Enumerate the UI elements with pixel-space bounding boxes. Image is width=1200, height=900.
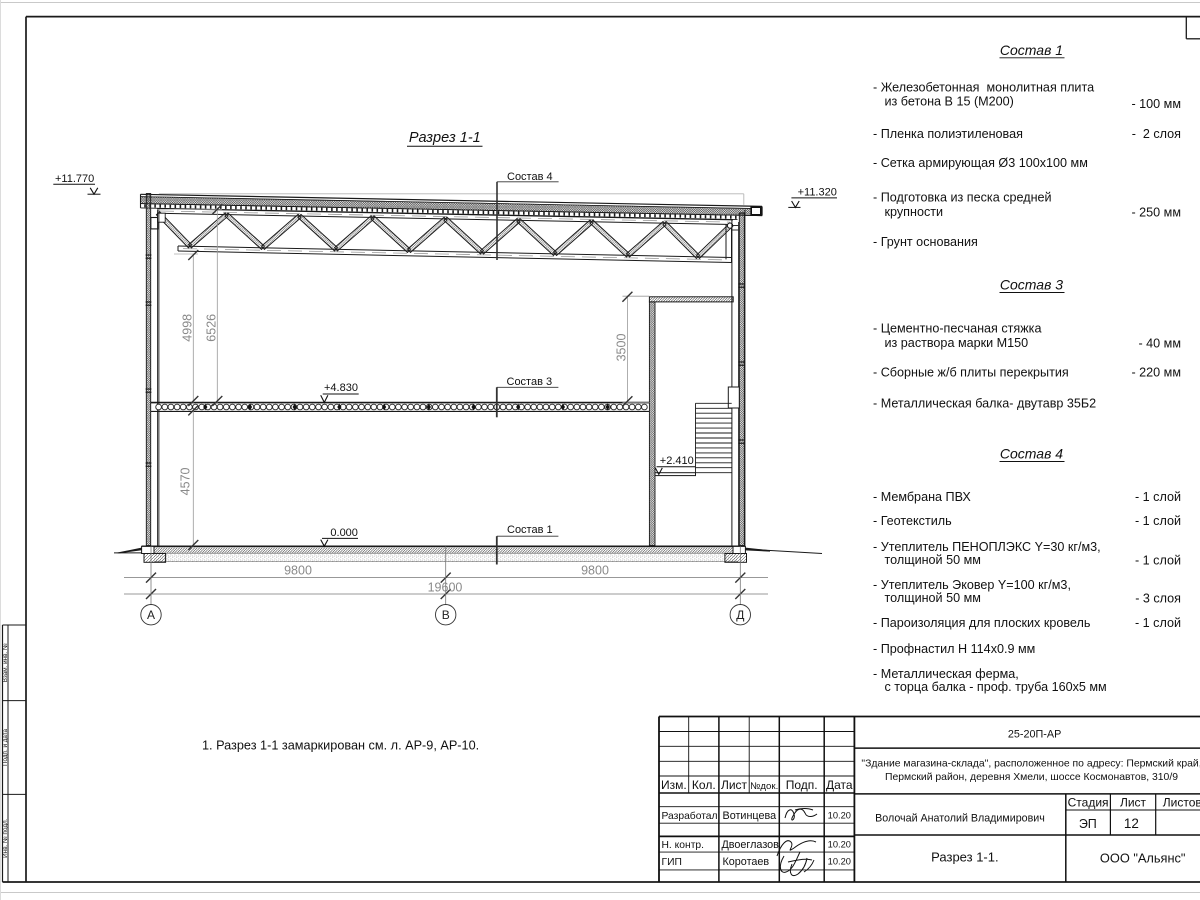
svg-text:- 40 мм: - 40 мм <box>1138 337 1181 351</box>
svg-text:Изм.: Изм. <box>661 778 687 792</box>
svg-text:0.000: 0.000 <box>330 527 358 539</box>
svg-text:- Сборные ж/б плиты перекрытия: - Сборные ж/б плиты перекрытия <box>873 366 1069 380</box>
svg-text:- 100 мм: - 100 мм <box>1131 97 1181 111</box>
svg-text:+2.410: +2.410 <box>660 455 694 467</box>
svg-text:толщиной 50 мм: толщиной 50 мм <box>885 553 981 567</box>
svg-text:Волочай Анатолий Владимирович: Волочай Анатолий Владимирович <box>875 812 1045 824</box>
svg-text:Пермский район, деревня Хмели,: Пермский район, деревня Хмели, шоссе Кос… <box>885 772 1178 783</box>
svg-text:крупности: крупности <box>885 205 944 219</box>
svg-text:Разрез 1-1.: Разрез 1-1. <box>931 850 998 865</box>
svg-text:- Металлическая ферма,: - Металлическая ферма, <box>873 667 1019 681</box>
svg-text:Лист: Лист <box>721 778 748 792</box>
svg-text:- Пленка полиэтиленовая: - Пленка полиэтиленовая <box>873 127 1023 141</box>
svg-text:19600: 19600 <box>428 580 463 594</box>
svg-text:- Мембрана ПВХ: - Мембрана ПВХ <box>873 490 971 504</box>
svg-text:- Грунт основания: - Грунт основания <box>873 235 978 249</box>
svg-text:Вотинцева: Вотинцева <box>723 810 777 822</box>
svg-text:+11.320: +11.320 <box>798 187 837 199</box>
svg-text:10.20: 10.20 <box>828 811 851 821</box>
svg-text:- Цементно-песчаная стяжка: - Цементно-песчаная стяжка <box>873 321 1041 335</box>
svg-text:Состав 3: Состав 3 <box>1000 276 1063 292</box>
svg-text:- Подготовка из песка средней: - Подготовка из песка средней <box>873 191 1052 205</box>
svg-text:- Пароизоляция для плоских кро: - Пароизоляция для плоских кровель <box>873 616 1091 630</box>
svg-text:Разработал: Разработал <box>662 810 718 822</box>
svg-text:- Железобетонная монолитная п: - Железобетонная монолитная плита <box>873 81 1094 95</box>
svg-text:Двоеглазов: Двоеглазов <box>722 839 780 851</box>
svg-text:- 2 слоя: - 2 слоя <box>1132 127 1181 141</box>
svg-text:Разрез 1-1: Разрез 1-1 <box>409 130 481 146</box>
svg-text:ЭП: ЭП <box>1079 817 1097 831</box>
svg-text:- Металлическая балка- двутавр: - Металлическая балка- двутавр 35Б2 <box>873 397 1096 411</box>
svg-text:Состав 3: Состав 3 <box>507 376 553 388</box>
svg-text:9800: 9800 <box>581 564 609 578</box>
svg-text:В: В <box>442 608 450 622</box>
svg-text:- Утеплитель ПЕНОПЛЭКС Y=30 кг: - Утеплитель ПЕНОПЛЭКС Y=30 кг/м3, <box>873 540 1101 554</box>
svg-text:ООО "Альянс": ООО "Альянс" <box>1100 851 1186 866</box>
svg-text:Состав 1: Состав 1 <box>507 524 553 536</box>
svg-text:- 1 слой: - 1 слой <box>1135 616 1181 630</box>
svg-text:Стадия: Стадия <box>1068 796 1109 810</box>
svg-text:1. Разрез 1-1 замаркирован см.: 1. Разрез 1-1 замаркирован см. л. АР-9, … <box>202 739 479 753</box>
svg-text:Состав 1: Состав 1 <box>1000 42 1063 58</box>
svg-text:с торца балка - проф. труба 16: с торца балка - проф. труба 160х5 мм <box>885 680 1107 694</box>
svg-text:Дата: Дата <box>826 778 853 792</box>
svg-text:9800: 9800 <box>284 564 312 578</box>
svg-text:10.20: 10.20 <box>828 840 851 850</box>
svg-text:4998: 4998 <box>180 314 194 342</box>
svg-text:- Сетка армирующая Ø3 100х100: - Сетка армирующая Ø3 100х100 мм <box>873 156 1088 170</box>
svg-text:- Утеплитель Эковер Y=100 кг/м: - Утеплитель Эковер Y=100 кг/м3, <box>873 578 1071 592</box>
svg-text:Подп.: Подп. <box>786 778 818 792</box>
svg-text:А: А <box>147 608 155 622</box>
svg-text:4570: 4570 <box>179 467 193 495</box>
svg-text:- 3 слоя: - 3 слоя <box>1135 592 1181 606</box>
svg-text:- Профнастил Н 114х0.9 мм: - Профнастил Н 114х0.9 мм <box>873 642 1035 656</box>
svg-text:- 1 слой: - 1 слой <box>1135 554 1181 568</box>
svg-text:Листов: Листов <box>1163 796 1200 810</box>
svg-text:+4.830: +4.830 <box>324 382 358 394</box>
svg-text:25-20П-АР: 25-20П-АР <box>1008 728 1061 740</box>
svg-text:12: 12 <box>1124 816 1139 831</box>
svg-text:- 220 мм: - 220 мм <box>1131 366 1181 380</box>
svg-text:№док.: №док. <box>750 781 778 792</box>
svg-text:Д: Д <box>736 608 744 622</box>
svg-text:Н. контр.: Н. контр. <box>662 840 705 851</box>
svg-text:Кол.: Кол. <box>692 778 716 792</box>
svg-text:"Здание магазина-склада", расп: "Здание магазина-склада", расположенное … <box>861 758 1200 769</box>
svg-text:+11.770: +11.770 <box>55 173 94 185</box>
svg-text:Лист: Лист <box>1120 796 1147 810</box>
svg-text:Состав 4: Состав 4 <box>507 171 553 183</box>
svg-text:из бетона В 15 (М200): из бетона В 15 (М200) <box>885 95 1014 109</box>
svg-text:Состав 4: Состав 4 <box>1000 445 1063 461</box>
svg-text:Инв. № подл.: Инв. № подл. <box>2 818 9 857</box>
svg-text:ГИП: ГИП <box>662 857 682 868</box>
svg-text:10.20: 10.20 <box>828 857 851 867</box>
svg-text:- 250 мм: - 250 мм <box>1131 206 1181 220</box>
svg-text:- 1 слой: - 1 слой <box>1135 490 1181 504</box>
svg-text:толщиной 50 мм: толщиной 50 мм <box>885 591 981 605</box>
svg-text:6526: 6526 <box>204 314 218 342</box>
svg-text:- 1 слой: - 1 слой <box>1135 514 1181 528</box>
svg-text:Коротаев: Коротаев <box>723 856 770 868</box>
svg-text:Подп. и дата: Подп. и дата <box>2 728 9 766</box>
svg-text:- Геотекстиль: - Геотекстиль <box>873 514 952 528</box>
svg-text:3500: 3500 <box>614 334 628 362</box>
svg-text:из раствора марки М150: из раствора марки М150 <box>885 336 1029 350</box>
svg-text:Взам. инв. №: Взам. инв. № <box>2 643 9 682</box>
